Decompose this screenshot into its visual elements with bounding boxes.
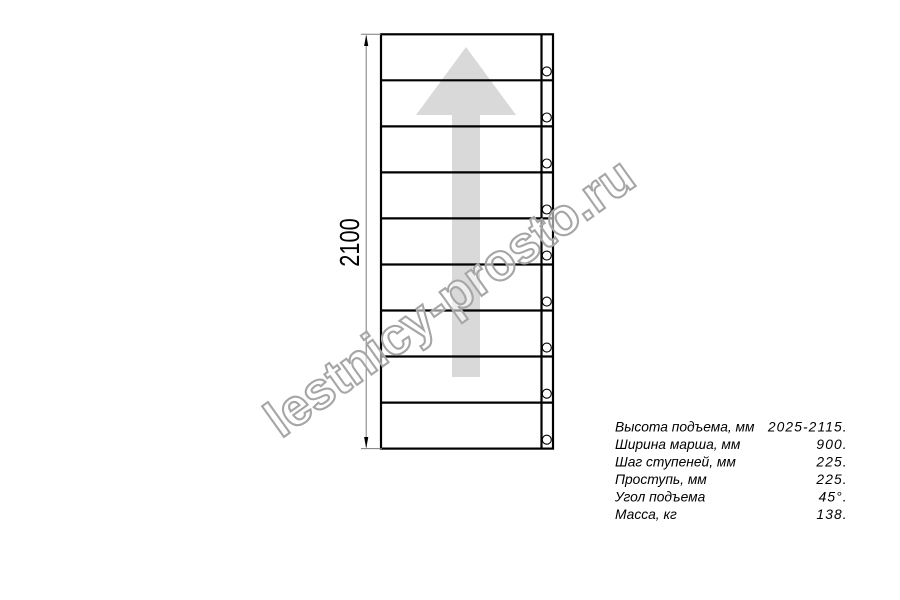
svg-text:Угол подъема: Угол подъема: [614, 490, 706, 505]
svg-text:138.: 138.: [816, 507, 847, 522]
svg-text:Масса, кг: Масса, кг: [615, 507, 677, 522]
svg-text:225.: 225.: [815, 472, 847, 487]
svg-text:2025-2115.: 2025-2115.: [767, 420, 848, 435]
svg-text:Высота подъема, мм: Высота подъема, мм: [615, 420, 755, 435]
svg-text:Ширина марша, мм: Ширина марша, мм: [615, 437, 741, 452]
svg-text:Проступь, мм: Проступь, мм: [615, 472, 707, 487]
svg-text:Шаг ступеней, мм: Шаг ступеней, мм: [615, 455, 736, 470]
svg-text:900.: 900.: [816, 437, 847, 452]
svg-text:45°.: 45°.: [819, 490, 848, 505]
svg-text:2100: 2100: [334, 218, 365, 267]
svg-text:225.: 225.: [815, 455, 847, 470]
